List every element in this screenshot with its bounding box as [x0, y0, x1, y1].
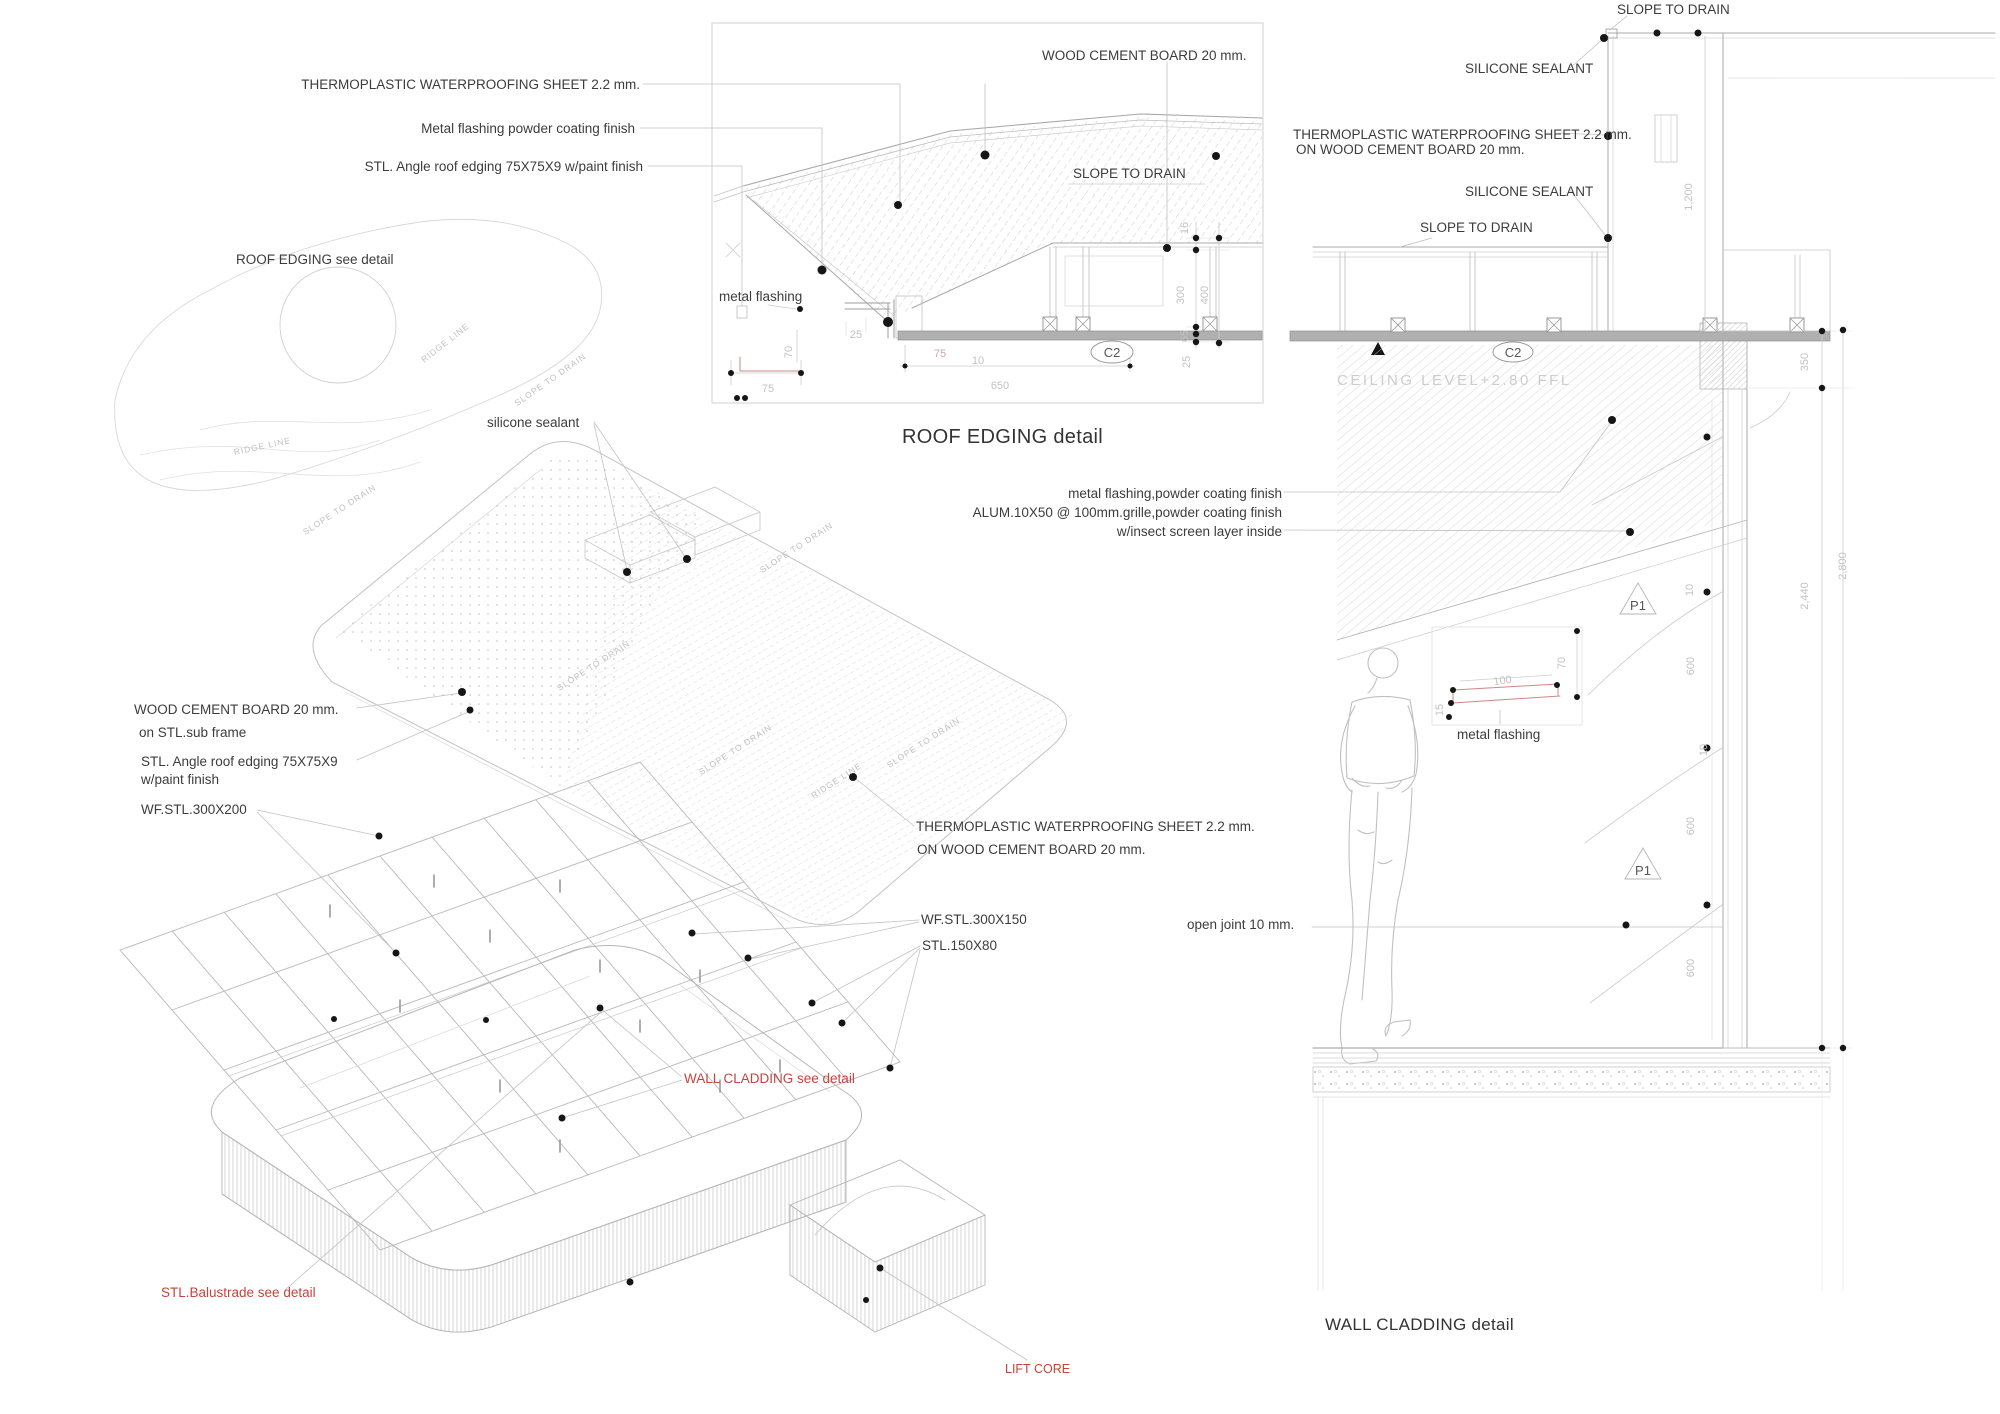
dim-25: 25 — [850, 329, 862, 341]
red-flashing-profile — [1453, 684, 1560, 703]
callout-stl-balustrade-see-detail: STL.Balustrade see detail — [161, 1284, 316, 1302]
callout-stl-angle-axon-line2: w/paint finish — [141, 771, 219, 789]
p1-marker-label: P1 — [1635, 863, 1651, 878]
detail-callout-circle — [280, 267, 396, 383]
callout-slope-to-drain-wall: SLOPE TO DRAIN — [1420, 219, 1533, 237]
dim-25b: 25 — [1181, 356, 1193, 368]
dim-2440: 2,440 — [1799, 582, 1811, 610]
p1-marker-label: P1 — [1630, 598, 1646, 613]
dim-75b: 75 — [762, 383, 774, 395]
person-figure — [1340, 648, 1417, 1064]
callout-thermoplastic-axon-line1: THERMOPLASTIC WATERPROOFING SHEET 2.2 mm… — [916, 818, 1255, 836]
callout-metal-flashing-wall: metal flashing — [1457, 726, 1540, 744]
c2-marker-label: C2 — [1104, 345, 1121, 360]
dim-70w: 70 — [1556, 657, 1568, 669]
surface-label-ridge: RIDGE LINE — [233, 435, 292, 457]
axonometric-drawing — [115, 219, 1076, 1360]
callout-stl-angle-axon-line1: STL. Angle roof edging 75X75X9 — [141, 753, 338, 771]
callout-lift-core: LIFT CORE — [1005, 1361, 1070, 1377]
dim-70: 70 — [783, 346, 795, 358]
callout-roof-edging-see-detail: ROOF EDGING see detail — [236, 251, 394, 269]
deck-balustrade — [211, 946, 861, 1333]
callout-thermoplastic-sheet: THERMOPLASTIC WATERPROOFING SHEET 2.2 mm… — [295, 76, 640, 94]
dim-300: 300 — [1175, 286, 1187, 304]
callout-wood-cement-board: WOOD CEMENT BOARD 20 mm. — [1042, 47, 1247, 65]
callout-wf-stl-300x200: WF.STL.300X200 — [141, 801, 247, 819]
surface-label-slope: SLOPE TO DRAIN — [301, 482, 378, 537]
dim-600: 600 — [1685, 657, 1697, 675]
callout-metal-flashing-powder: Metal flashing powder coating finish — [295, 120, 635, 138]
dim-10-joint: 10 — [1684, 584, 1696, 596]
floor-concrete-band — [1313, 1067, 1830, 1092]
callout-wall-cladding-see-detail: WALL CLADDING see detail — [684, 1070, 855, 1088]
callout-open-joint: open joint 10 mm. — [1187, 916, 1294, 934]
callout-metal-flashing-powder-wall: metal flashing,powder coating finish — [960, 485, 1282, 503]
dim-10: 10 — [972, 355, 984, 367]
label-slope-to-drain: SLOPE TO DRAIN — [1073, 165, 1186, 183]
dim-75: 75 — [934, 348, 946, 360]
callout-silicone-sealant-lower: SILICONE SEALANT — [1465, 183, 1593, 201]
wall-cladding-detail-title: WALL CLADDING detail — [1325, 1314, 1514, 1336]
callout-slope-to-drain-top: SLOPE TO DRAIN — [1617, 1, 1730, 19]
callout-stl-angle: STL. Angle roof edging 75X75X9 w/paint f… — [295, 158, 643, 176]
callout-thermoplastic-axon-line2: ON WOOD CEMENT BOARD 20 mm. — [917, 841, 1146, 859]
dim-650: 650 — [991, 380, 1009, 392]
c2-marker-label: C2 — [1505, 345, 1522, 360]
callout-stl-150x80: STL.150X80 — [922, 937, 997, 955]
roof-edging-drawing — [640, 23, 1263, 403]
dim-65: 65 — [1179, 330, 1191, 342]
callout-wood-cement-board-axon: WOOD CEMENT BOARD 20 mm. — [134, 701, 339, 719]
alum-grille-soffit — [1337, 345, 1723, 640]
roof-edging-detail-title: ROOF EDGING detail — [880, 424, 1125, 450]
dim-10-joint: 10 — [1698, 744, 1710, 756]
ceiling-level-label: CEILING LEVEL+2.80 FFL — [1337, 372, 1572, 389]
grid-posts — [330, 875, 780, 1152]
callout-thermoplastic-wall-line2: ON WOOD CEMENT BOARD 20 mm. — [1296, 141, 1525, 159]
dim-600: 600 — [1685, 959, 1697, 977]
dim-1200: 1,200 — [1683, 183, 1695, 211]
callout-silicone-sealant-upper: SILICONE SEALANT — [1465, 60, 1593, 78]
dim-15w: 15 — [1434, 704, 1446, 716]
wall-cladding-drawing — [1284, 16, 1995, 1290]
drawing-sheet: 70 25 75 10 650 75 16 300 400 65 25 C2 1… — [0, 0, 2000, 1414]
callout-on-stl-sub-frame: on STL.sub frame — [139, 724, 246, 742]
callout-silicone-sealant: silicone sealant — [487, 414, 579, 432]
callout-alum-grille-line2: w/insect screen layer inside — [960, 523, 1282, 541]
dim-600: 600 — [1685, 817, 1697, 835]
callout-alum-grille-line1: ALUM.10X50 @ 100mm.grille,powder coating… — [960, 504, 1282, 522]
dim-350: 350 — [1799, 353, 1811, 371]
callout-wf-stl-300x150: WF.STL.300X150 — [921, 911, 1027, 929]
dim-400: 400 — [1199, 286, 1211, 304]
ceiling-board-strip — [898, 331, 1262, 340]
surface-label-ridge: RIDGE LINE — [419, 321, 471, 365]
surface-label-slope: SLOPE TO DRAIN — [513, 351, 588, 408]
dim-2800: 2,800 — [1837, 552, 1849, 580]
callout-metal-flashing: metal flashing — [719, 288, 802, 306]
dim-100: 100 — [1493, 674, 1513, 688]
dim-16: 16 — [1179, 222, 1191, 234]
